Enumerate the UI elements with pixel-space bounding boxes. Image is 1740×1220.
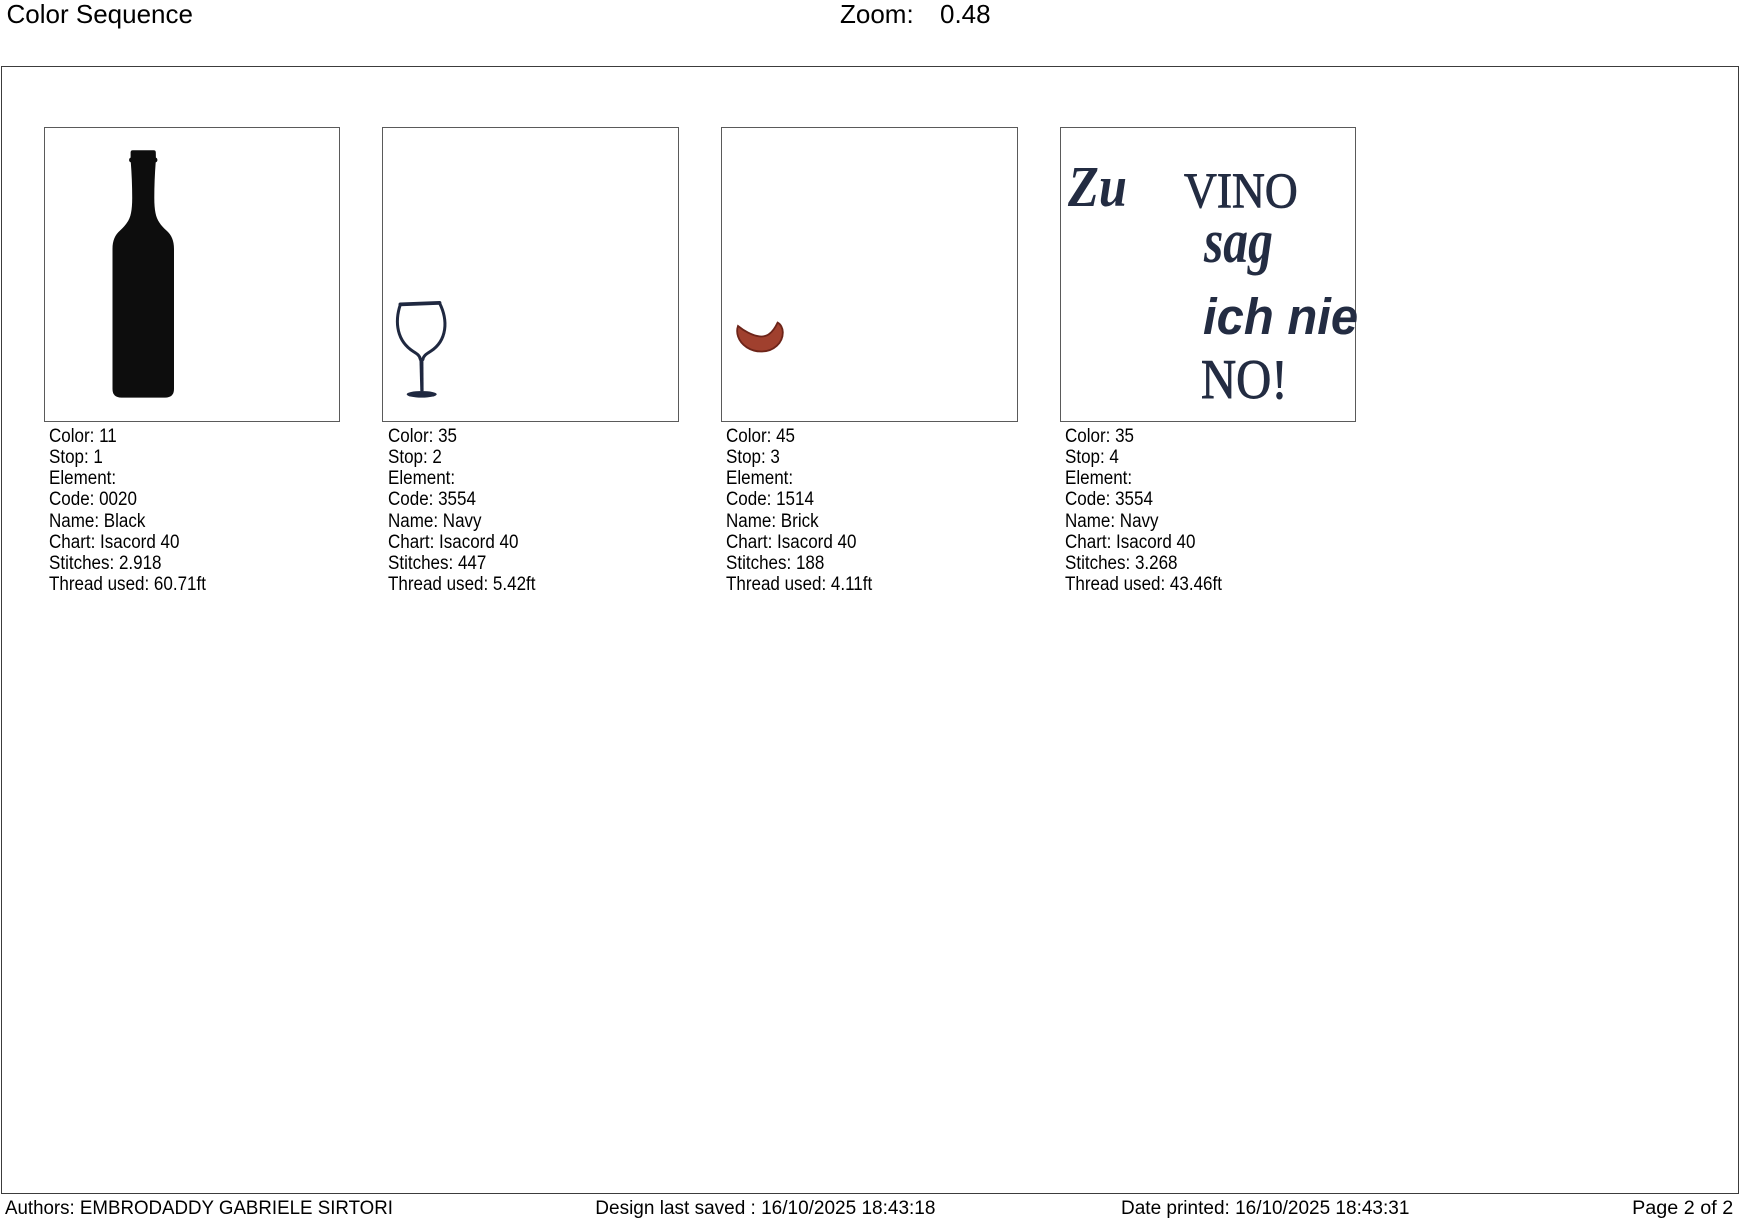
svg-text:sag: sag [1203,208,1273,276]
svg-text:Zu: Zu [1067,155,1127,219]
svg-text:NO!: NO! [1201,349,1288,411]
svg-text:ich nie: ich nie [1203,288,1358,345]
